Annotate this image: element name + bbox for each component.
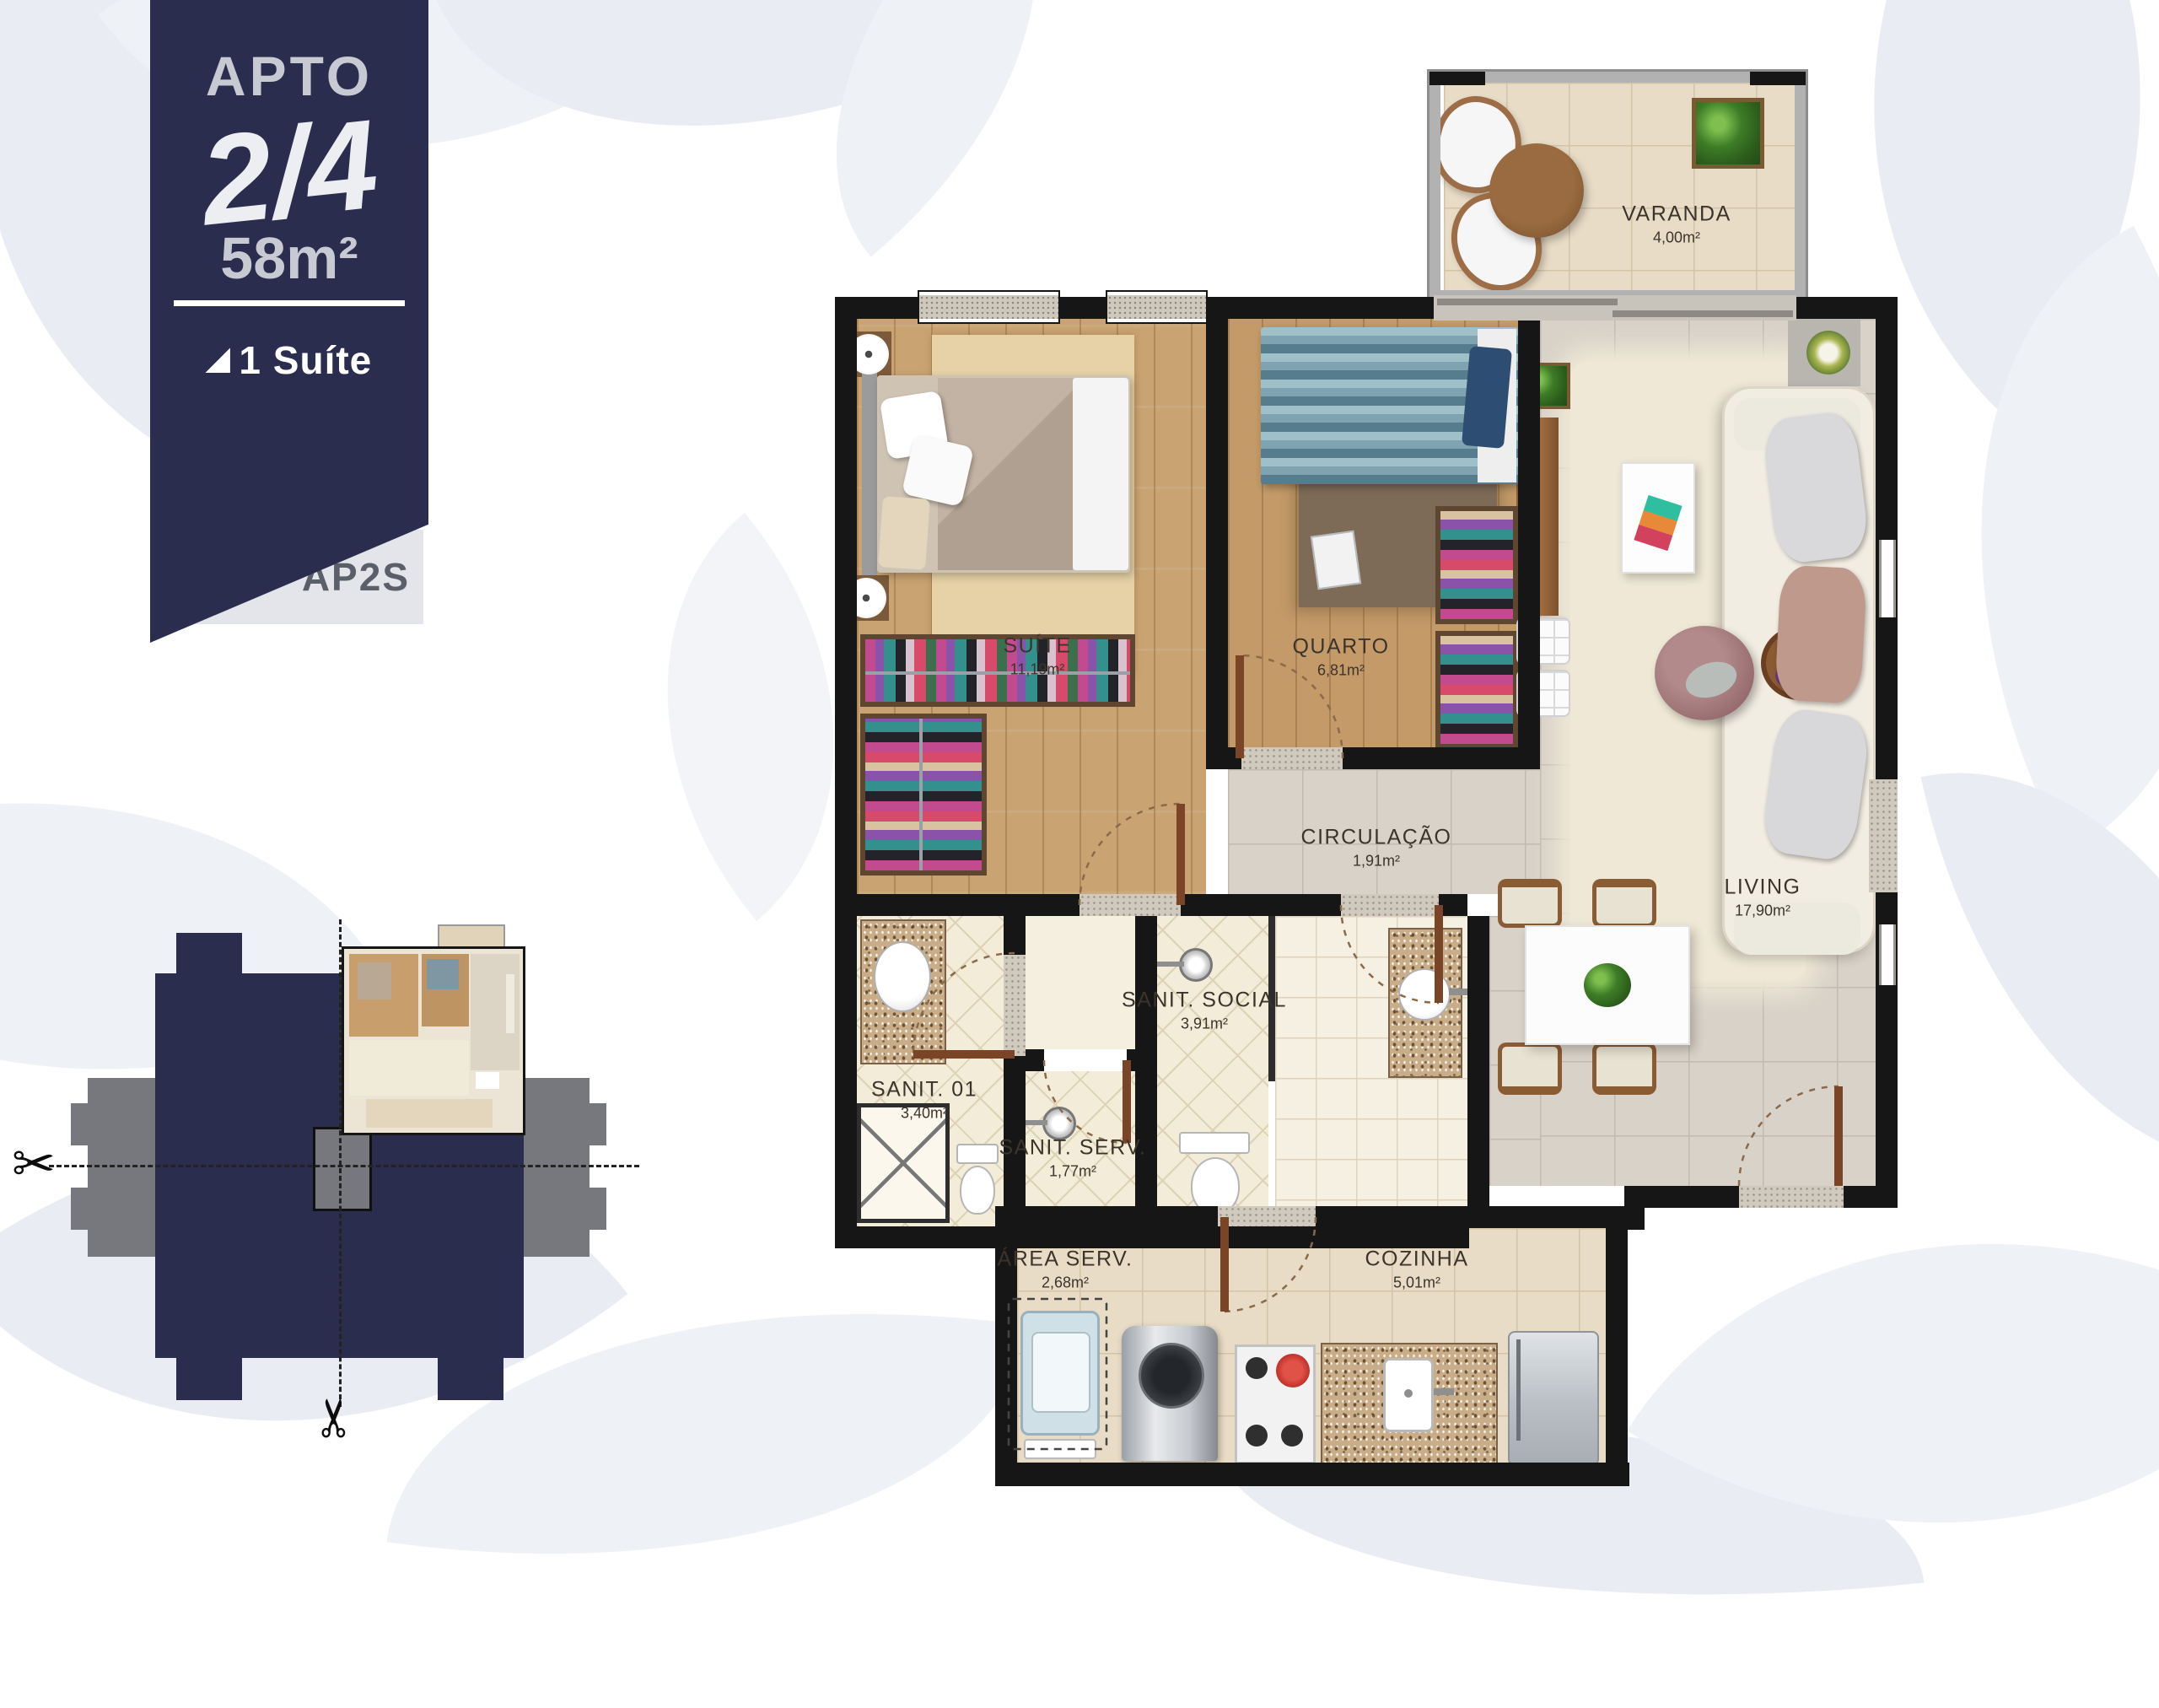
- badge-feature: ◢1 Suíte: [150, 337, 428, 383]
- badge-divider: [174, 300, 405, 306]
- room-label-suite: SUÍTE11,19m²: [1003, 634, 1071, 679]
- room-label-cozinha: COZINHA5,01m²: [1365, 1247, 1469, 1292]
- triangle-icon: ◢: [207, 341, 231, 375]
- apartment-badge: AP2S APTO 2/4 58m² ◢1 Suíte: [150, 0, 428, 654]
- floor-plan-page: { "badge": { "title": "APTO", "fraction"…: [0, 0, 2159, 1527]
- room-label-living: LIVING17,90m²: [1725, 876, 1801, 920]
- room-label-quarto: QUARTO6,81m²: [1292, 635, 1389, 680]
- room-label-sanit-01: SANIT. 013,40m²: [871, 1078, 977, 1123]
- room-label-varanda: VARANDA4,00m²: [1622, 202, 1731, 247]
- room-label-area-serv: ÁREA SERV.2,68m²: [998, 1247, 1133, 1292]
- badge-feature-text: 1 Suíte: [239, 338, 372, 382]
- room-label-circulacao: CIRCULAÇÃO1,91m²: [1301, 826, 1452, 870]
- room-label-sanit-serv: SANIT. SERV.1,77m²: [999, 1136, 1146, 1181]
- badge-area: 58m²: [150, 224, 428, 292]
- room-label-sanit-social: SANIT. SOCIAL3,91m²: [1122, 989, 1287, 1033]
